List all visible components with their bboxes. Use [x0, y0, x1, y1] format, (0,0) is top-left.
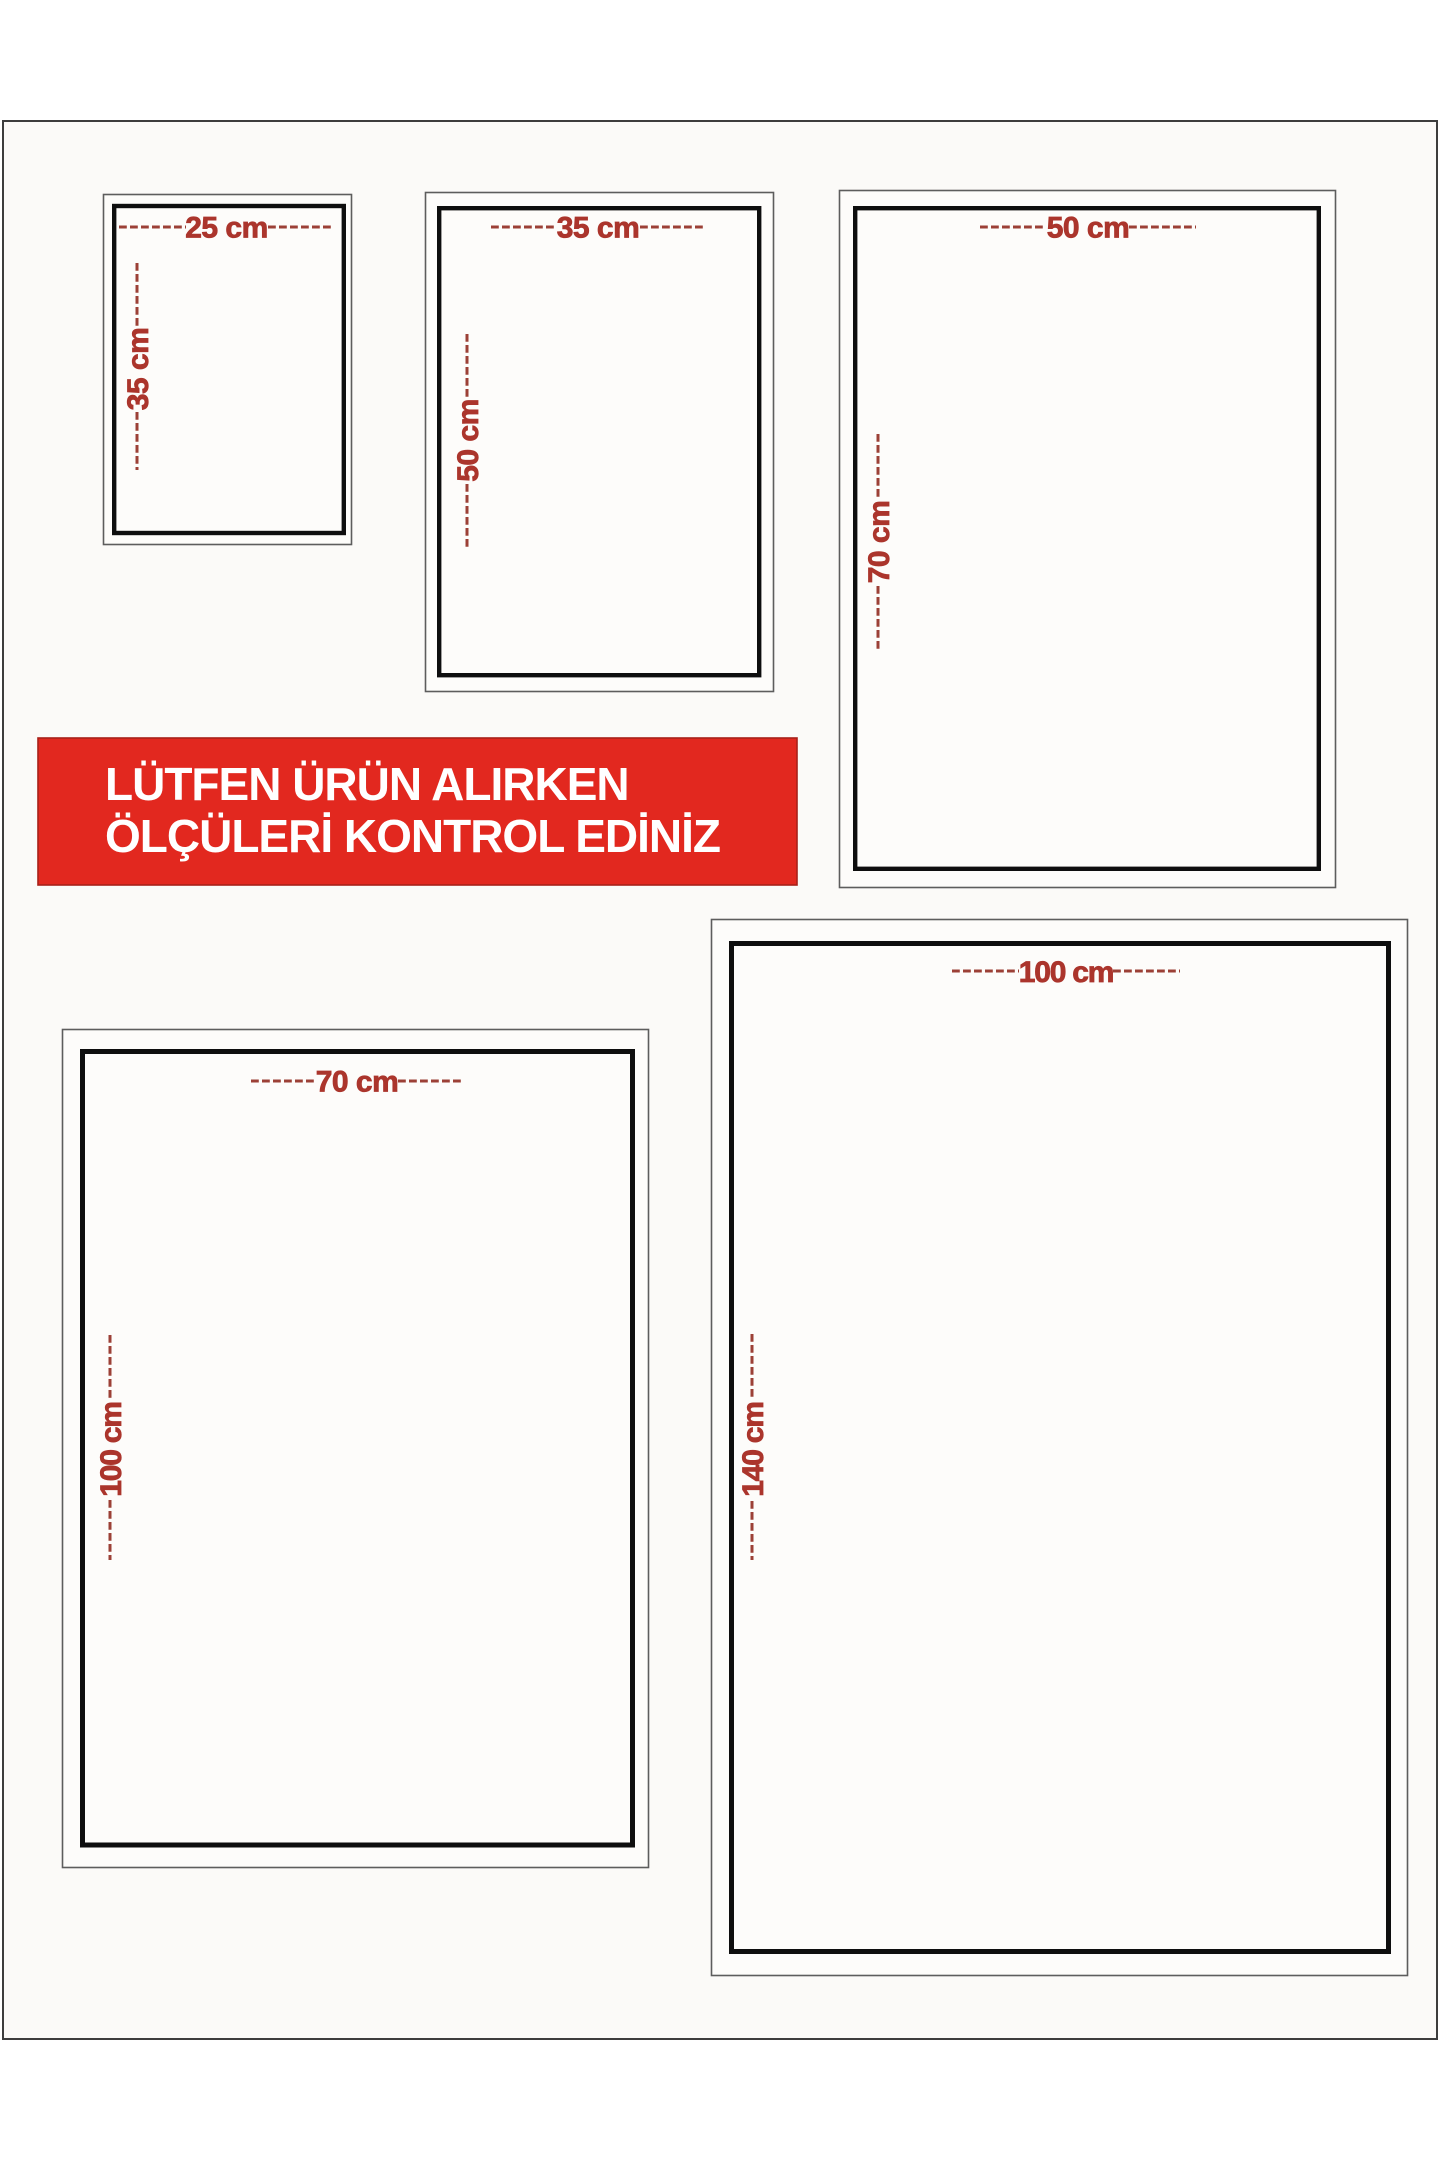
svg-text:LÜTFEN ÜRÜN ALIRKEN: LÜTFEN ÜRÜN ALIRKEN	[105, 758, 629, 810]
svg-text:35 cm: 35 cm	[122, 328, 155, 411]
svg-text:100 cm: 100 cm	[1019, 956, 1114, 989]
svg-text:70 cm: 70 cm	[863, 501, 896, 584]
svg-text:70 cm: 70 cm	[316, 1066, 399, 1099]
svg-text:25 cm: 25 cm	[185, 212, 268, 245]
svg-text:50 cm: 50 cm	[1047, 212, 1130, 245]
svg-text:35 cm: 35 cm	[557, 212, 640, 245]
svg-text:140 cm: 140 cm	[737, 1402, 770, 1497]
svg-text:100 cm: 100 cm	[95, 1402, 128, 1497]
svg-text:50 cm: 50 cm	[452, 399, 485, 482]
svg-text:ÖLÇÜLERİ KONTROL EDİNİZ: ÖLÇÜLERİ KONTROL EDİNİZ	[105, 810, 720, 862]
